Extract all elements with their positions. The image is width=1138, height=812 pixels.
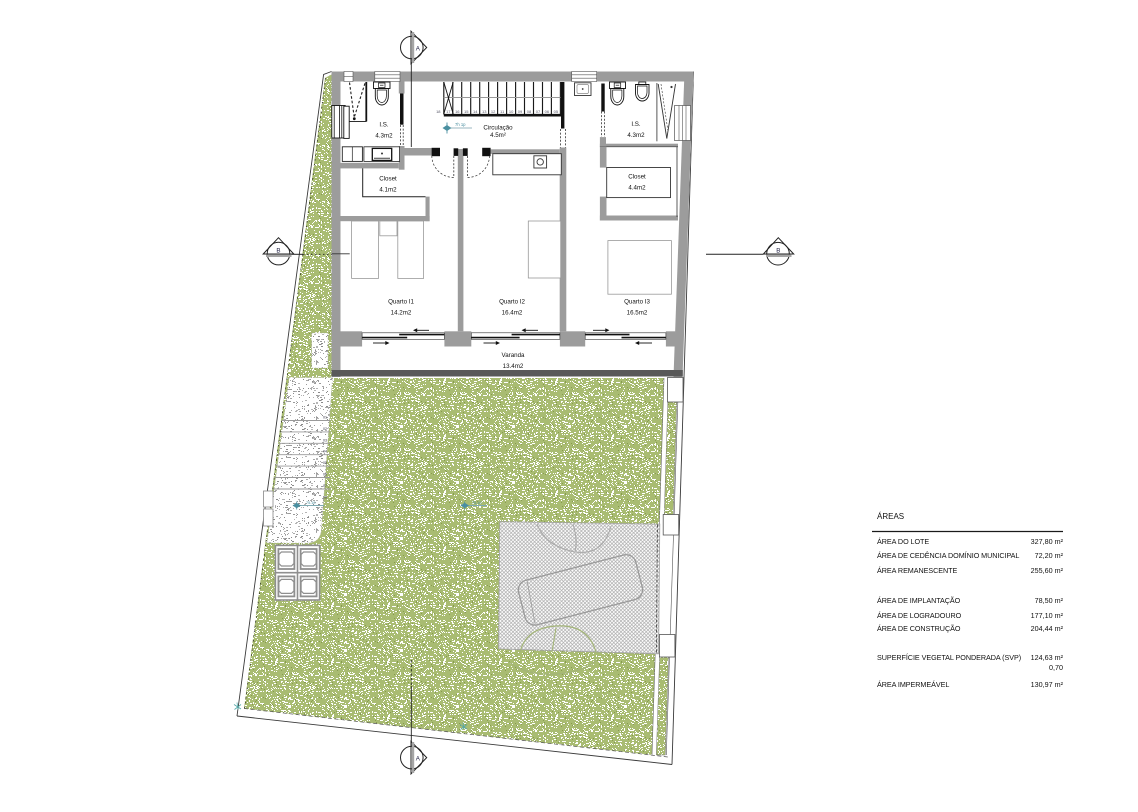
svg-text:05: 05 [554, 109, 559, 114]
svg-text:ÁREA IMPERMEÁVEL: ÁREA IMPERMEÁVEL [877, 680, 949, 689]
svg-text:ÁREA DO LOTE: ÁREA DO LOTE [877, 537, 929, 546]
svg-text:18: 18 [436, 109, 441, 114]
svg-text:14: 14 [473, 109, 478, 114]
svg-text:4.3m2: 4.3m2 [375, 133, 393, 140]
svg-text:05: 05 [323, 461, 327, 465]
svg-text:0,70: 0,70 [1049, 663, 1063, 672]
svg-text:4.1m2: 4.1m2 [379, 187, 397, 194]
svg-text:124,63 m²: 124,63 m² [1031, 653, 1064, 662]
svg-text:ÁREA DE CEDÊNCIA DOMÍNIO MUNIC: ÁREA DE CEDÊNCIA DOMÍNIO MUNICIPAL [877, 551, 1019, 560]
svg-text:B: B [276, 247, 280, 254]
svg-text:06: 06 [323, 473, 327, 477]
svg-text:255,60 m²: 255,60 m² [1031, 566, 1064, 575]
svg-text:Closet: Closet [379, 176, 397, 183]
svg-text:Quarto I3: Quarto I3 [624, 299, 650, 306]
svg-text:204,44 m²: 204,44 m² [1031, 624, 1064, 633]
svg-text:12: 12 [491, 109, 496, 114]
svg-text:4.3m2: 4.3m2 [627, 132, 645, 139]
svg-text:16: 16 [455, 109, 460, 114]
svg-text:ÁREA DE IMPLANTAÇÃO: ÁREA DE IMPLANTAÇÃO [877, 596, 961, 605]
svg-text:ÁREA DE LOGRADOURO: ÁREA DE LOGRADOURO [877, 611, 962, 620]
svg-text:03: 03 [323, 438, 327, 442]
svg-text:ÁREA DE CONSTRUÇÃO: ÁREA DE CONSTRUÇÃO [877, 624, 961, 633]
svg-text:10: 10 [509, 109, 514, 114]
svg-text:177,10 m²: 177,10 m² [1031, 611, 1064, 620]
svg-text:I.S.: I.S. [379, 122, 389, 129]
svg-text:04: 04 [323, 450, 327, 454]
svg-text:13: 13 [482, 109, 487, 114]
svg-text:14.2m2: 14.2m2 [391, 310, 412, 317]
svg-text:07: 07 [323, 484, 327, 488]
svg-text:Quarto I2: Quarto I2 [499, 299, 525, 306]
svg-text:72,20 m²: 72,20 m² [1035, 551, 1064, 560]
svg-text:01: 01 [323, 416, 327, 420]
svg-text:13.4m2: 13.4m2 [503, 363, 524, 370]
svg-text:07: 07 [536, 109, 541, 114]
svg-text:75.10: 75.10 [472, 501, 482, 505]
svg-text:Quarto I1: Quarto I1 [388, 299, 414, 306]
svg-text:Varanda: Varanda [502, 352, 525, 359]
svg-text:Circulação: Circulação [483, 125, 513, 132]
svg-text:4.4m2: 4.4m2 [628, 185, 646, 192]
svg-text:130,97 m²: 130,97 m² [1031, 680, 1064, 689]
svg-text:08: 08 [527, 109, 532, 114]
svg-text:15: 15 [464, 109, 469, 114]
svg-text:B: B [776, 247, 780, 254]
svg-text:ÁREAS: ÁREAS [877, 512, 904, 521]
svg-text:Closet: Closet [628, 174, 646, 181]
svg-text:75.10: 75.10 [306, 501, 316, 505]
svg-text:I.S.: I.S. [631, 121, 641, 128]
svg-text:09: 09 [518, 109, 523, 114]
svg-text:16.5m2: 16.5m2 [627, 310, 648, 317]
svg-text:02: 02 [323, 427, 327, 431]
svg-text:7h 1p: 7h 1p [455, 122, 466, 127]
svg-text:78,50 m²: 78,50 m² [1035, 596, 1064, 605]
svg-text:SUPERFÍCIE VEGETAL PONDERADA (: SUPERFÍCIE VEGETAL PONDERADA (SVP) [877, 653, 1021, 662]
svg-text:ÁREA REMANESCENTE: ÁREA REMANESCENTE [877, 566, 957, 575]
svg-text:08: 08 [323, 495, 327, 499]
svg-text:327,80 m²: 327,80 m² [1031, 537, 1064, 546]
svg-text:17: 17 [446, 109, 451, 114]
svg-text:4.5m²: 4.5m² [490, 132, 506, 139]
svg-text:16.4m2: 16.4m2 [502, 310, 523, 317]
svg-text:06: 06 [545, 109, 550, 114]
